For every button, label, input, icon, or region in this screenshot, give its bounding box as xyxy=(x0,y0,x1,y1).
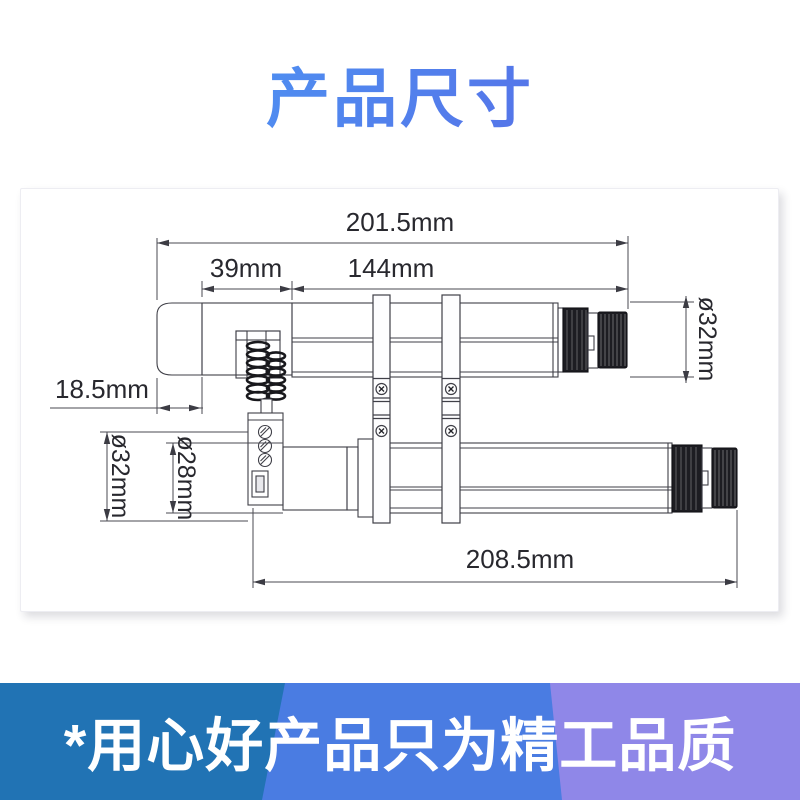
dim-total-length-top: 201.5mm xyxy=(346,207,454,237)
dim-total-length-bottom: 208.5mm xyxy=(466,544,574,574)
clamp-bracket xyxy=(236,331,280,378)
bottom-device-drawing xyxy=(248,413,737,517)
top-device-drawing xyxy=(157,303,627,414)
terminal-box xyxy=(248,413,283,505)
dim-cap-length: 18.5mm xyxy=(55,374,149,404)
dimension-diagram: 201.5mm 39mm 144mm 18.5mm ø32mm ø32mm ø2… xyxy=(0,0,800,800)
spring-coil xyxy=(247,342,285,400)
dim-diameter-left-outer: ø32mm xyxy=(106,434,134,519)
dim-segment-144: 144mm xyxy=(348,253,435,283)
dim-segment-39: 39mm xyxy=(210,253,282,283)
footer-slogan: *用心好产品只为精工品质 xyxy=(0,698,800,782)
probe-cap xyxy=(157,303,202,375)
spring-stem xyxy=(261,399,272,414)
dim-diameter-right: ø32mm xyxy=(693,297,721,382)
dimension-arrowheads xyxy=(104,240,737,585)
dimension-lines xyxy=(50,236,737,588)
footer-banner: *用心好产品只为精工品质 xyxy=(0,683,800,800)
mounting-straps xyxy=(373,295,460,523)
dim-diameter-left-inner: ø28mm xyxy=(172,436,200,521)
thread-tip xyxy=(712,448,737,508)
